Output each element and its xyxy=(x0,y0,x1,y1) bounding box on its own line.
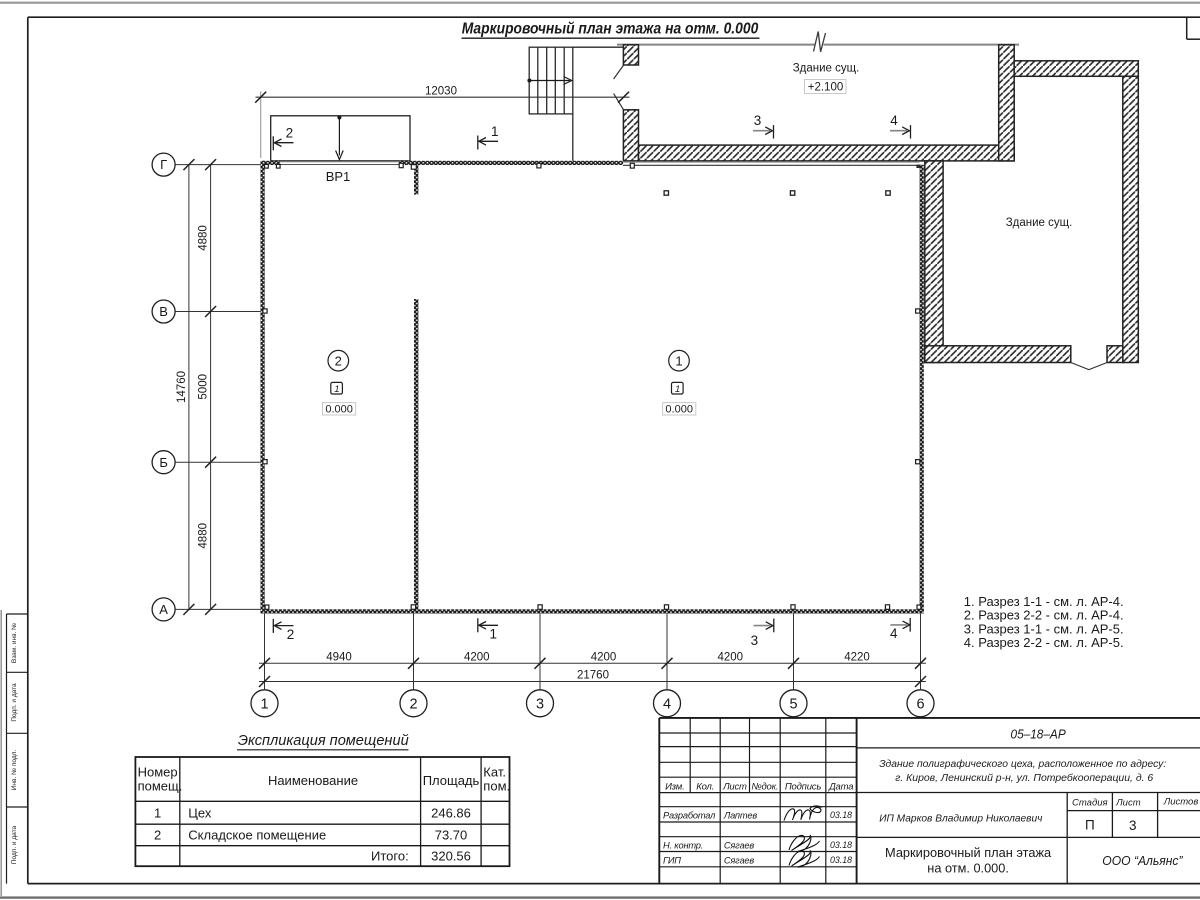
svg-text:4200: 4200 xyxy=(718,651,744,663)
svg-text:1: 1 xyxy=(490,627,498,642)
svg-text:0.000: 0.000 xyxy=(665,403,693,415)
svg-text:4880: 4880 xyxy=(198,523,210,549)
svg-text:Маркировочный план этажа: Маркировочный план этажа xyxy=(885,846,1051,860)
svg-text:1: 1 xyxy=(491,124,499,139)
svg-text:2: 2 xyxy=(154,827,161,842)
svg-text:Н. контр.: Н. контр. xyxy=(663,840,703,850)
svg-text:Итого:: Итого: xyxy=(371,849,409,864)
svg-text:Маркировочный план этажа на от: Маркировочный план этажа на отм. 0.000 xyxy=(462,21,759,38)
svg-text:03.18: 03.18 xyxy=(830,855,852,865)
svg-text:Площадь: Площадь xyxy=(423,773,480,788)
svg-text:ООО “Альянс”: ООО “Альянс” xyxy=(1102,854,1183,868)
svg-text:4: 4 xyxy=(663,696,671,712)
svg-text:4200: 4200 xyxy=(591,651,617,663)
svg-text:Здание сущ.: Здание сущ. xyxy=(1006,217,1073,229)
svg-text:1: 1 xyxy=(154,806,161,821)
svg-text:+2.100: +2.100 xyxy=(808,82,844,94)
svg-text:2: 2 xyxy=(335,354,342,369)
svg-text:№док.: №док. xyxy=(751,781,778,792)
svg-text:1: 1 xyxy=(260,696,268,712)
svg-text:Взам. инв. №: Взам. инв. № xyxy=(11,623,18,663)
svg-text:14760: 14760 xyxy=(176,371,188,403)
svg-text:Наименование: Наименование xyxy=(268,773,358,788)
svg-text:3: 3 xyxy=(751,633,759,648)
svg-text:4: 4 xyxy=(890,626,898,641)
svg-text:Г: Г xyxy=(160,157,167,172)
svg-text:1: 1 xyxy=(334,384,339,395)
svg-text:Экспликация помещений: Экспликация помещений xyxy=(238,733,409,749)
svg-text:3: 3 xyxy=(536,696,544,712)
svg-text:Сягаев: Сягаев xyxy=(724,840,755,850)
svg-text:Цех: Цех xyxy=(188,806,212,821)
svg-text:Инв. № подл.: Инв. № подл. xyxy=(11,750,18,791)
svg-text:3. Разрез 1-1 - см. л. АР-5.: 3. Разрез 1-1 - см. л. АР-5. xyxy=(964,621,1124,636)
svg-text:4940: 4940 xyxy=(326,651,352,663)
svg-text:03.18: 03.18 xyxy=(830,810,852,820)
svg-text:2: 2 xyxy=(409,696,417,712)
svg-text:4220: 4220 xyxy=(844,651,870,663)
svg-text:на отм. 0.000.: на отм. 0.000. xyxy=(927,861,1009,875)
svg-text:21760: 21760 xyxy=(577,670,609,682)
svg-text:1: 1 xyxy=(675,354,682,369)
svg-text:Лист: Лист xyxy=(722,781,747,792)
svg-text:Здание сущ.: Здание сущ. xyxy=(793,63,860,75)
svg-text:Сягаев: Сягаев xyxy=(724,855,755,865)
svg-text:4: 4 xyxy=(890,113,898,128)
svg-text:Подпись: Подпись xyxy=(785,781,821,792)
svg-text:ГИП: ГИП xyxy=(663,855,681,865)
svg-text:12030: 12030 xyxy=(425,86,457,98)
svg-text:5: 5 xyxy=(789,696,797,712)
svg-text:Дата: Дата xyxy=(828,781,853,792)
svg-text:Подп. и дата: Подп. и дата xyxy=(11,683,18,722)
svg-text:Номер: Номер xyxy=(138,764,178,779)
svg-text:ИП Марков Владимир Николаевич: ИП Марков Владимир Николаевич xyxy=(879,813,1043,825)
svg-text:0.000: 0.000 xyxy=(325,403,353,415)
svg-text:Кат.: Кат. xyxy=(483,764,506,779)
svg-text:73.70: 73.70 xyxy=(435,827,468,842)
svg-text:03.18: 03.18 xyxy=(830,840,852,850)
svg-text:5000: 5000 xyxy=(198,374,210,400)
svg-text:3: 3 xyxy=(754,113,762,128)
svg-text:А: А xyxy=(159,602,168,617)
svg-text:6: 6 xyxy=(916,696,924,712)
svg-text:Изм.: Изм. xyxy=(665,781,684,792)
svg-text:ВР1: ВР1 xyxy=(326,169,351,184)
svg-text:05–18–АР: 05–18–АР xyxy=(1011,727,1067,741)
svg-text:3: 3 xyxy=(1129,818,1137,833)
svg-text:320.56: 320.56 xyxy=(431,849,471,864)
svg-text:4880: 4880 xyxy=(198,225,210,251)
svg-text:Б: Б xyxy=(159,455,168,470)
svg-text:4200: 4200 xyxy=(464,651,490,663)
svg-text:Здание полиграфического цеха,: Здание полиграфического цеха, расположен… xyxy=(879,758,1166,770)
svg-text:Стадия: Стадия xyxy=(1072,797,1108,808)
svg-text:2. Разрез 2-2 - см. л. АР-4.: 2. Разрез 2-2 - см. л. АР-4. xyxy=(964,608,1124,623)
svg-text:Листов: Листов xyxy=(1163,797,1199,808)
svg-text:П: П xyxy=(1085,818,1095,833)
svg-text:2: 2 xyxy=(287,627,295,642)
svg-text:1. Разрез 1-1 - см. л. АР-4.: 1. Разрез 1-1 - см. л. АР-4. xyxy=(964,594,1124,609)
svg-text:246.86: 246.86 xyxy=(431,806,471,821)
svg-text:Разработал: Разработал xyxy=(663,810,716,820)
svg-text:Кол.: Кол. xyxy=(696,781,714,792)
svg-text:Лист: Лист xyxy=(1115,798,1141,809)
svg-text:2: 2 xyxy=(286,126,294,141)
svg-text:1: 1 xyxy=(675,384,680,395)
svg-text:В: В xyxy=(159,304,168,319)
svg-text:Складское помещение: Складское помещение xyxy=(188,827,326,842)
svg-text:помещ.: помещ. xyxy=(138,778,183,793)
svg-text:4. Разрез 2-2 - см. л. АР-5.: 4. Разрез 2-2 - см. л. АР-5. xyxy=(964,635,1124,650)
svg-text:Подп. и дата: Подп. и дата xyxy=(11,825,18,864)
svg-text:Лаптев: Лаптев xyxy=(723,810,757,820)
svg-text:г. Киров, Ленинский р-н, ул.: г. Киров, Ленинский р-н, ул. Потребкоопе… xyxy=(895,772,1153,784)
svg-text:пом.: пом. xyxy=(483,778,510,793)
